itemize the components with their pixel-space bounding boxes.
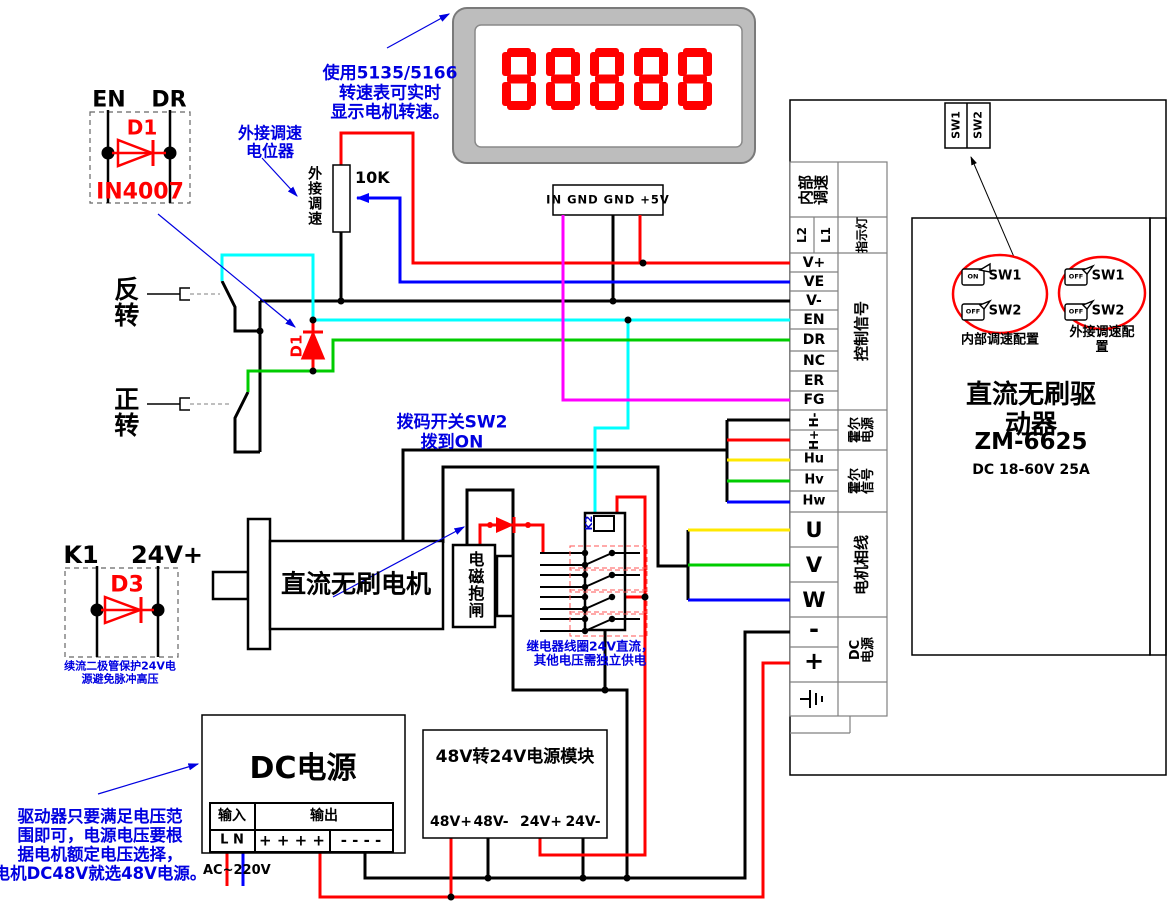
dip-ext-sw1-state: OFF	[1069, 273, 1083, 280]
driver-rating: DC 18-60V 25A	[972, 462, 1090, 478]
terminal-hw: Hw	[803, 495, 826, 510]
terminal-minus: -	[809, 616, 819, 644]
terminal-l2: L2	[796, 227, 808, 243]
terminal-hv: Hv	[804, 474, 823, 489]
d1-pin-dr: DR	[151, 87, 186, 112]
dip-int-sw2-label: SW2	[989, 305, 1022, 320]
psu-note: 驱动器只要满足电压范 围即可，电源电压要根 据电机额定电压选择， 电机DC48V…	[0, 808, 206, 884]
module-title: 48V转24V电源模块	[436, 748, 595, 768]
d1-circuit-label: D1	[290, 335, 305, 358]
d1-pin-en: EN	[92, 87, 125, 112]
magenta-wire	[563, 215, 790, 400]
tachometer-display	[453, 8, 755, 163]
terminal-internal-speed: 内部 调速	[799, 175, 829, 205]
dip-int-sw1-state: ON	[968, 273, 979, 280]
terminal-h-plus: H+	[808, 430, 820, 450]
dip-ext-sw1-label: SW1	[1092, 270, 1125, 285]
potentiometer	[333, 165, 350, 232]
dc-input-pins: L N	[220, 834, 244, 849]
wiper-arrowhead	[356, 193, 369, 203]
terminal-l1: L1	[820, 227, 832, 243]
group-hall-power: 霍尔 电源	[849, 417, 875, 443]
terminal-en: EN	[803, 312, 824, 328]
dc-minus-pins: - - - -	[341, 832, 382, 849]
wiring-diagram: EN DR D1 IN4007 外接调速 电位器 外接调速 10K 使用5135…	[0, 0, 1170, 908]
relay	[540, 513, 647, 636]
module-pin-24vm: 24V-	[565, 814, 600, 830]
k1-label: K1	[63, 542, 98, 570]
dip-ext-sw2-state: OFF	[1069, 308, 1083, 315]
dip-external-caption: 外接调速配置	[1068, 326, 1136, 356]
dip-int-sw2-state: OFF	[966, 308, 980, 315]
terminal-u: U	[805, 518, 822, 542]
sw1-box-label: SW1	[951, 111, 962, 139]
relay-note: 继电器线圈24V直流， 其他电压需独立供电	[526, 640, 653, 669]
dip-config	[953, 255, 1145, 333]
forward-switch-label: 正转	[110, 386, 139, 438]
ac-label: AC~220V	[203, 864, 271, 879]
tachometer-note: 使用5135/5166 转速表可实时 显示电机转速。	[323, 65, 458, 124]
cyan-wires	[222, 255, 790, 513]
d1-part-number: IN4007	[96, 179, 184, 204]
module-pin-24vp: 24V+	[520, 814, 562, 830]
yellow-wires	[688, 460, 790, 530]
terminal-nc: NC	[803, 353, 825, 369]
dc-supply-title: DC电源	[250, 752, 357, 787]
terminal-h-minus: H-	[808, 412, 820, 427]
terminal-w: W	[802, 588, 825, 612]
terminal-v: V	[806, 553, 822, 577]
motor-label: 直流无刷电机	[281, 571, 431, 600]
terminal-plus: +	[804, 648, 824, 676]
terminal-v-minus: V-	[806, 293, 822, 309]
terminal-fg: FG	[803, 392, 824, 408]
reverse-switch-label: 反转	[110, 276, 139, 328]
24v-label: 24V+	[131, 542, 203, 570]
terminal-v-plus: V+	[803, 255, 826, 271]
pot-label: 外接调速	[306, 166, 322, 226]
dip-ext-sw2-label: SW2	[1092, 305, 1125, 320]
d3-label: D3	[110, 572, 144, 597]
dc-plus-pins: + + + +	[259, 832, 325, 849]
group-dc-power: DC 电源	[849, 637, 875, 663]
terminal-ve: VE	[804, 274, 824, 290]
switch-leads	[147, 288, 190, 410]
brake-label: 电磁抱闸	[465, 551, 483, 619]
d3-note: 续流二极管保护24V电 源避免脉冲高压	[64, 660, 176, 685]
meter-connector-pins: IN GND GND +5V	[546, 193, 670, 206]
dc-input-label: 输入	[218, 808, 246, 824]
group-hall-signal: 霍尔 信号	[849, 468, 875, 494]
circuit-diode-d1	[303, 320, 323, 371]
relay-label: K2	[585, 516, 595, 531]
dip-internal-caption: 内部调速配置	[961, 334, 1039, 349]
group-indicator: 指示灯	[856, 217, 868, 253]
module-pin-48vp: 48V+	[430, 814, 472, 830]
module-pin-48vm: 48V-	[473, 814, 508, 830]
dip-int-sw1-label: SW1	[989, 270, 1022, 285]
terminal-dr: DR	[803, 332, 825, 348]
group-control-signal: 控制信号	[855, 301, 870, 361]
dc-output-label: 输出	[310, 808, 338, 824]
driver-model: ZM-6625	[974, 429, 1087, 455]
d1-label: D1	[127, 117, 158, 140]
pot-value: 10K	[355, 169, 390, 187]
switch-dashed	[190, 294, 232, 404]
terminal-hu: Hu	[804, 453, 824, 468]
sw2-box-label: SW2	[973, 111, 984, 139]
group-motor-phase: 电机相线	[855, 535, 870, 595]
terminal-er: ER	[804, 373, 824, 389]
pot-note: 外接调速 电位器	[238, 125, 302, 162]
sw-pointer-arrow	[971, 157, 1014, 257]
dip-sw2-note: 拨码开关SW2 拨到ON	[397, 413, 508, 452]
